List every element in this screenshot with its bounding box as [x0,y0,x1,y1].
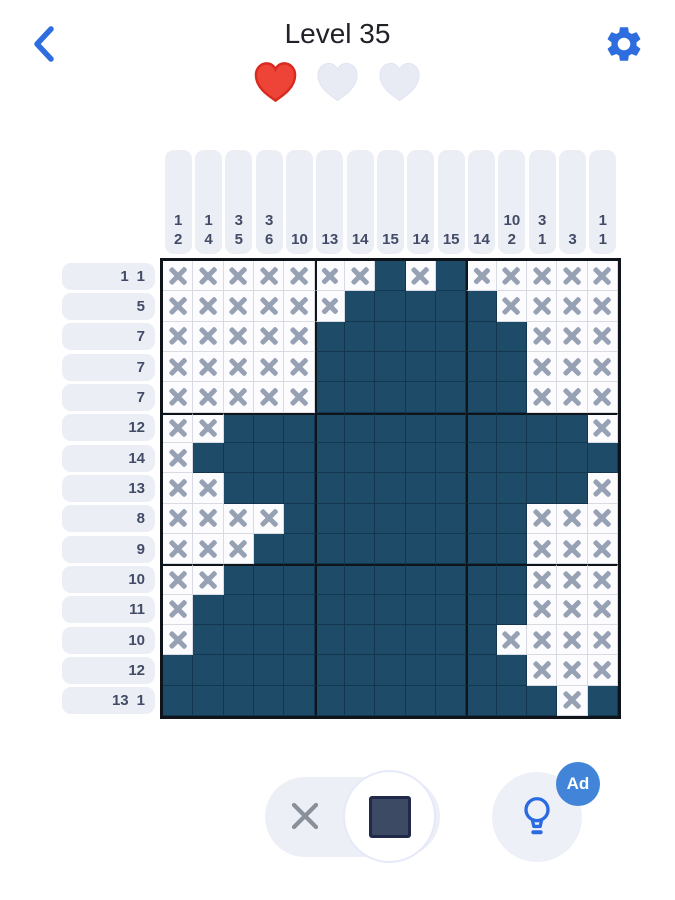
grid-cell[interactable] [557,655,587,685]
grid-cell[interactable] [315,655,345,685]
grid-cell[interactable] [588,564,618,594]
row-clues: 1157771214138910111012131 [62,258,155,719]
grid-cell[interactable] [436,382,466,412]
grid-cell[interactable] [315,473,345,503]
grid-cell[interactable] [436,352,466,382]
grid-cell[interactable] [436,473,466,503]
grid-cell[interactable] [163,352,193,382]
grid-cell[interactable] [315,322,345,352]
grid-cell[interactable] [588,413,618,443]
grid-cell[interactable] [193,534,223,564]
grid-cell[interactable] [224,291,254,321]
grid-cell[interactable] [527,686,557,716]
column-clue: 13 [316,150,343,254]
grid-cell[interactable] [193,291,223,321]
grid-cell[interactable] [193,625,223,655]
grid-cell[interactable] [557,413,587,443]
grid-cell[interactable] [436,443,466,473]
grid-cell[interactable] [254,504,284,534]
grid-cell[interactable] [557,322,587,352]
grid-cell[interactable] [497,382,527,412]
grid-cell[interactable] [163,686,193,716]
grid-cell[interactable] [163,382,193,412]
grid-cell[interactable] [284,686,314,716]
row-clue: 13 [62,475,155,502]
grid-cell[interactable] [406,625,436,655]
grid-cell[interactable] [193,413,223,443]
grid-cell[interactable] [315,352,345,382]
grid-cell[interactable] [557,564,587,594]
grid-cell[interactable] [375,595,405,625]
grid-cell[interactable] [315,564,345,594]
grid-cell[interactable] [224,443,254,473]
grid-cell[interactable] [284,655,314,685]
grid-cell[interactable] [497,655,527,685]
grid-cell[interactable] [254,686,284,716]
grid-cell[interactable] [315,504,345,534]
grid-cell[interactable] [224,595,254,625]
grid-cell[interactable] [588,686,618,716]
lives-hearts [0,60,675,109]
column-clue: 36 [256,150,283,254]
grid-cell[interactable] [406,504,436,534]
grid-cell[interactable] [406,534,436,564]
grid-cell[interactable] [375,655,405,685]
hint-ad-badge: Ad [556,762,600,806]
grid-cell[interactable] [315,686,345,716]
grid-cell[interactable] [284,595,314,625]
grid-cell[interactable] [466,473,496,503]
grid-cell[interactable] [345,261,375,291]
row-clue: 8 [62,505,155,532]
grid-cell[interactable] [193,504,223,534]
grid-cell[interactable] [588,473,618,503]
grid-cell[interactable] [436,686,466,716]
settings-button[interactable] [603,23,645,65]
grid-cell[interactable] [224,322,254,352]
column-clue: 14 [407,150,434,254]
grid-cell[interactable] [193,564,223,594]
grid-cell[interactable] [315,443,345,473]
grid-cell[interactable] [284,504,314,534]
grid-cell[interactable] [588,534,618,564]
grid-cell[interactable] [163,413,193,443]
grid-cell[interactable] [406,595,436,625]
column-clue: 31 [529,150,556,254]
grid-cell[interactable] [345,352,375,382]
grid-cell[interactable] [527,655,557,685]
grid-cell[interactable] [284,443,314,473]
grid-cell[interactable] [254,261,284,291]
row-clue: 11 [62,263,155,290]
grid-cell[interactable] [466,261,496,291]
grid-cell[interactable] [588,382,618,412]
puzzle-board: 121435361013141514151410231311 115777121… [62,150,621,719]
grid-cell[interactable] [315,291,345,321]
grid-cell[interactable] [497,322,527,352]
grid-cell[interactable] [406,261,436,291]
row-clue: 10 [62,627,155,654]
grid-cell[interactable] [527,382,557,412]
column-clue: 14 [195,150,222,254]
grid-cell[interactable] [315,382,345,412]
grid-cell[interactable] [436,595,466,625]
grid-cell[interactable] [557,382,587,412]
grid-cell[interactable] [254,564,284,594]
grid-cell[interactable] [375,564,405,594]
grid-cell[interactable] [375,473,405,503]
grid-cell[interactable] [497,504,527,534]
grid-cell[interactable] [557,352,587,382]
grid-cell[interactable] [406,443,436,473]
grid-cell[interactable] [254,595,284,625]
grid-cell[interactable] [406,564,436,594]
grid-cell[interactable] [497,686,527,716]
grid-cell[interactable] [254,382,284,412]
grid-cell[interactable] [466,655,496,685]
grid-cell[interactable] [345,625,375,655]
grid-cell[interactable] [497,534,527,564]
board-corner [62,150,155,254]
grid-cell[interactable] [557,686,587,716]
grid-cell[interactable] [254,534,284,564]
grid-cell[interactable] [497,564,527,594]
grid-cell[interactable] [254,443,284,473]
grid-cell[interactable] [436,534,466,564]
grid-cell[interactable] [527,473,557,503]
page-title: Level 35 [0,18,675,50]
grid-cell[interactable] [284,261,314,291]
grid-cell[interactable] [527,504,557,534]
grid-cell[interactable] [193,655,223,685]
grid-cell[interactable] [527,413,557,443]
grid-cell[interactable] [466,413,496,443]
grid-cell[interactable] [527,352,557,382]
grid-cell[interactable] [557,534,587,564]
grid-cell[interactable] [588,625,618,655]
grid-cell[interactable] [284,352,314,382]
row-clue: 14 [62,445,155,472]
column-clues: 121435361013141514151410231311 [160,150,621,254]
grid-cell[interactable] [466,352,496,382]
grid-cell[interactable] [193,473,223,503]
grid-cell[interactable] [284,291,314,321]
grid-cell[interactable] [557,595,587,625]
heart-empty-icon [376,60,423,109]
grid-cell[interactable] [284,473,314,503]
grid-cell[interactable] [588,504,618,534]
grid-cell[interactable] [345,413,375,443]
row-clue: 7 [62,354,155,381]
grid-cell[interactable] [527,625,557,655]
grid-cell[interactable] [497,443,527,473]
grid-cell[interactable] [588,352,618,382]
grid-cell[interactable] [557,473,587,503]
grid-cell[interactable] [163,625,193,655]
grid-cell[interactable] [345,595,375,625]
grid-cell[interactable] [436,261,466,291]
grid-cell[interactable] [315,261,345,291]
grid-cell[interactable] [254,473,284,503]
grid-cell[interactable] [588,443,618,473]
grid-cell[interactable] [557,261,587,291]
grid-cell[interactable] [254,655,284,685]
grid-cell[interactable] [436,504,466,534]
column-clue: 3 [559,150,586,254]
grid-cell[interactable] [375,413,405,443]
column-clue: 12 [165,150,192,254]
grid-cell[interactable] [588,595,618,625]
grid-cell[interactable] [466,534,496,564]
grid-cell[interactable] [345,686,375,716]
grid-cell[interactable] [315,625,345,655]
grid-cell[interactable] [375,534,405,564]
grid-cell[interactable] [224,261,254,291]
grid-cell[interactable] [466,382,496,412]
grid-cell[interactable] [345,534,375,564]
grid-cell[interactable] [163,473,193,503]
grid-cell[interactable] [375,443,405,473]
grid-cell[interactable] [315,595,345,625]
grid-cell[interactable] [224,686,254,716]
grid-cell[interactable] [284,534,314,564]
grid-cell[interactable] [345,504,375,534]
grid-cell[interactable] [254,352,284,382]
grid-cell[interactable] [224,504,254,534]
x-mark-icon [287,798,323,837]
grid-cell[interactable] [284,382,314,412]
grid-cell[interactable] [527,564,557,594]
row-clue: 9 [62,536,155,563]
row-clue: 131 [62,687,155,714]
grid-cell[interactable] [527,443,557,473]
puzzle-grid[interactable] [160,258,621,719]
grid-cell[interactable] [163,443,193,473]
grid-cell[interactable] [588,291,618,321]
grid-cell[interactable] [193,595,223,625]
grid-cell[interactable] [345,655,375,685]
grid-cell[interactable] [557,504,587,534]
grid-cell[interactable] [224,564,254,594]
column-clue: 15 [377,150,404,254]
grid-cell[interactable] [436,413,466,443]
grid-cell[interactable] [527,261,557,291]
grid-cell[interactable] [163,504,193,534]
row-clue: 5 [62,293,155,320]
grid-cell[interactable] [375,382,405,412]
grid-cell[interactable] [497,413,527,443]
column-clue: 15 [438,150,465,254]
grid-cell[interactable] [588,322,618,352]
grid-cell[interactable] [557,443,587,473]
grid-cell[interactable] [527,291,557,321]
lightbulb-icon [514,793,560,842]
grid-cell[interactable] [163,322,193,352]
grid-cell[interactable] [224,473,254,503]
grid-cell[interactable] [375,504,405,534]
grid-cell[interactable] [557,625,587,655]
grid-cell[interactable] [406,413,436,443]
grid-cell[interactable] [466,625,496,655]
grid-cell[interactable] [224,534,254,564]
grid-cell[interactable] [436,291,466,321]
grid-cell[interactable] [375,261,405,291]
grid-cell[interactable] [497,625,527,655]
grid-cell[interactable] [588,655,618,685]
grid-cell[interactable] [466,322,496,352]
grid-cell[interactable] [345,382,375,412]
grid-cell[interactable] [497,473,527,503]
grid-cell[interactable] [224,655,254,685]
grid-cell[interactable] [557,291,587,321]
row-clue: 7 [62,323,155,350]
grid-cell[interactable] [436,655,466,685]
grid-cell[interactable] [497,595,527,625]
grid-cell[interactable] [315,534,345,564]
grid-cell[interactable] [406,322,436,352]
grid-cell[interactable] [406,686,436,716]
grid-cell[interactable] [466,443,496,473]
grid-cell[interactable] [193,352,223,382]
heart-filled-icon [252,60,299,109]
row-clue: 12 [62,414,155,441]
grid-cell[interactable] [375,625,405,655]
grid-cell[interactable] [315,413,345,443]
column-clue: 11 [589,150,616,254]
grid-cell[interactable] [436,625,466,655]
grid-cell[interactable] [436,322,466,352]
grid-cell[interactable] [254,625,284,655]
grid-cell[interactable] [163,655,193,685]
column-clue: 35 [225,150,252,254]
cross-mode-button[interactable] [265,777,345,857]
grid-cell[interactable] [375,352,405,382]
grid-cell[interactable] [375,686,405,716]
grid-cell[interactable] [193,261,223,291]
grid-cell[interactable] [375,291,405,321]
grid-cell[interactable] [527,534,557,564]
grid-cell[interactable] [224,382,254,412]
row-clue: 12 [62,657,155,684]
grid-cell[interactable] [466,564,496,594]
grid-cell[interactable] [345,564,375,594]
grid-cell[interactable] [588,261,618,291]
grid-cell[interactable] [466,686,496,716]
grid-cell[interactable] [436,564,466,594]
grid-cell[interactable] [527,595,557,625]
row-clue: 7 [62,384,155,411]
grid-cell[interactable] [254,413,284,443]
grid-cell[interactable] [284,413,314,443]
grid-cell[interactable] [406,291,436,321]
filled-square-icon [369,796,411,838]
grid-cell[interactable] [406,655,436,685]
grid-cell[interactable] [193,322,223,352]
grid-cell[interactable] [406,352,436,382]
grid-cell[interactable] [345,291,375,321]
grid-cell[interactable] [193,686,223,716]
grid-cell[interactable] [284,322,314,352]
grid-cell[interactable] [163,534,193,564]
grid-cell[interactable] [284,625,314,655]
grid-cell[interactable] [345,443,375,473]
grid-cell[interactable] [163,261,193,291]
grid-cell[interactable] [254,291,284,321]
grid-cell[interactable] [224,352,254,382]
row-clue: 10 [62,566,155,593]
grid-cell[interactable] [466,595,496,625]
grid-cell[interactable] [224,625,254,655]
grid-cell[interactable] [163,291,193,321]
grid-cell[interactable] [284,564,314,594]
grid-cell[interactable] [406,382,436,412]
grid-cell[interactable] [497,291,527,321]
column-clue: 10 [286,150,313,254]
grid-cell[interactable] [254,322,284,352]
fill-mode-button[interactable] [343,770,436,863]
grid-cell[interactable] [345,322,375,352]
grid-cell[interactable] [406,473,436,503]
grid-cell[interactable] [497,261,527,291]
grid-cell[interactable] [375,322,405,352]
column-clue: 14 [468,150,495,254]
grid-cell[interactable] [466,504,496,534]
grid-cell[interactable] [224,413,254,443]
grid-cell[interactable] [466,291,496,321]
grid-cell[interactable] [193,443,223,473]
row-clue: 11 [62,596,155,623]
grid-cell[interactable] [527,322,557,352]
heart-empty-icon [314,60,361,109]
column-clue: 14 [347,150,374,254]
grid-cell[interactable] [163,564,193,594]
grid-cell[interactable] [193,382,223,412]
grid-cell[interactable] [345,473,375,503]
grid-cell[interactable] [163,595,193,625]
grid-cell[interactable] [497,352,527,382]
column-clue: 102 [498,150,525,254]
